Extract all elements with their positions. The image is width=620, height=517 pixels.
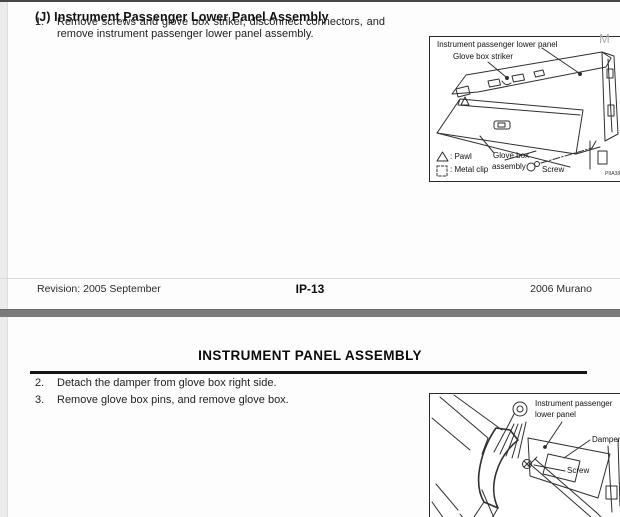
fig-label-screw: Screw [542, 165, 564, 174]
line-art-glove-box-damper [430, 394, 620, 517]
fig-label-screw: Screw [567, 466, 589, 475]
step-text: Remove glove box pins, and remove glove … [57, 395, 380, 407]
page-left-edge [0, 2, 8, 517]
viewer-top-divider [0, 0, 620, 2]
step-number: 2. [35, 378, 57, 390]
figure-code: PIIA3893E [605, 171, 620, 177]
fig-label-glove-box-assembly-2: assembly [492, 162, 526, 171]
chapter-heading: INSTRUMENT PANEL ASSEMBLY [0, 348, 620, 363]
fig-label-glove-box-striker: Glove box striker [453, 52, 513, 61]
footer-rule [0, 278, 620, 279]
figure-glove-box-damper: Instrument passenger lower panel Damper … [429, 393, 620, 517]
step-text: Remove screws and glove box striker, dis… [57, 17, 385, 40]
page-separator-bar [0, 309, 620, 317]
procedure-step-3: 3. Remove glove box pins, and remove glo… [35, 395, 380, 407]
watermark-m: M [599, 31, 610, 46]
fig-label-glove-box-assembly-1: Glove box [493, 151, 529, 160]
fig-label-lower-panel-2: lower panel [535, 410, 576, 419]
page-footer: Revision: 2005 September IP-13 2006 Mura… [0, 283, 620, 297]
footer-page-number: IP-13 [0, 282, 620, 296]
step-number: 3. [35, 395, 57, 407]
fig-label-lower-panel-1: Instrument passenger [535, 399, 612, 408]
footer-model: 2006 Murano [530, 283, 592, 295]
step-text: Detach the damper from glove box right s… [57, 378, 380, 390]
step-number: 1. [35, 17, 57, 40]
fig-label-damper: Damper [592, 435, 620, 444]
legend-pawl-label: : Pawl [450, 152, 472, 161]
procedure-step-1: 1. Remove screws and glove box striker, … [35, 17, 385, 40]
procedure-step-2: 2. Detach the damper from glove box righ… [35, 378, 380, 390]
fig-label-lower-panel: Instrument passenger lower panel [437, 40, 558, 49]
legend-metal-clip-label: : Metal clip [450, 165, 488, 174]
heading-rule [30, 371, 587, 374]
figure-glove-box-removal: Instrument passenger lower panel Glove b… [429, 36, 620, 182]
manual-viewer: (J) Instrument Passenger Lower Panel Ass… [0, 0, 620, 517]
